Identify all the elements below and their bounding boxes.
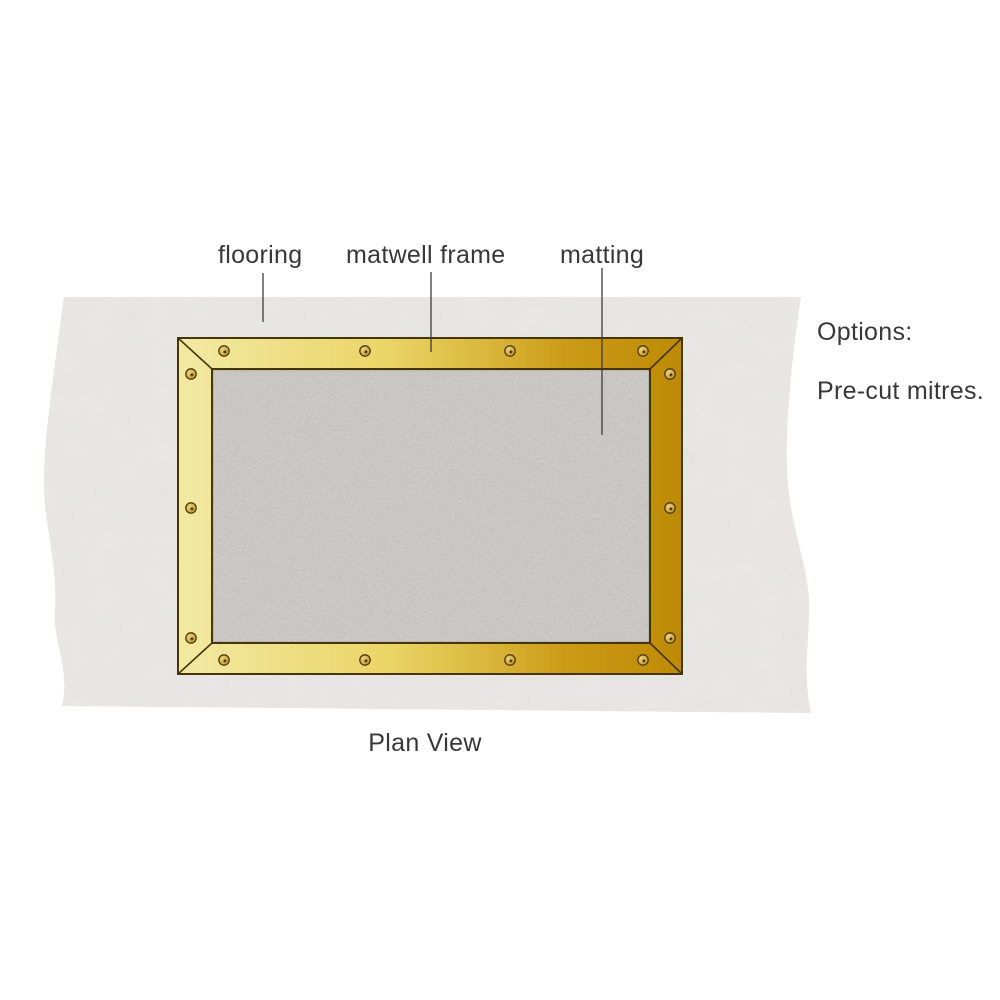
screw-icon [505,346,515,356]
caption-plan-view: Plan View [368,729,481,758]
matting-area [205,362,657,650]
options-heading: Options: [817,318,913,347]
options-item-pre-cut-mitres: Pre-cut mitres. [817,377,984,406]
screw-icon [186,369,196,379]
label-flooring: flooring [218,241,302,270]
screw-icon [360,655,370,665]
screw-icon [505,655,515,665]
screw-icon [186,633,196,643]
label-matwell-frame: matwell frame [346,241,506,270]
screw-icon [360,346,370,356]
screw-icon [665,633,675,643]
screw-icon [219,346,229,356]
matwell-diagram [0,0,1000,1000]
screw-icon [665,369,675,379]
screw-icon [219,655,229,665]
diagram-canvas: flooring matwell frame matting Options: … [0,0,1000,1000]
screw-icon [638,346,648,356]
screw-icon [665,503,675,513]
screw-icon [186,503,196,513]
label-matting: matting [560,241,644,270]
matting-texture-light [205,362,657,650]
screw-icon [638,655,648,665]
